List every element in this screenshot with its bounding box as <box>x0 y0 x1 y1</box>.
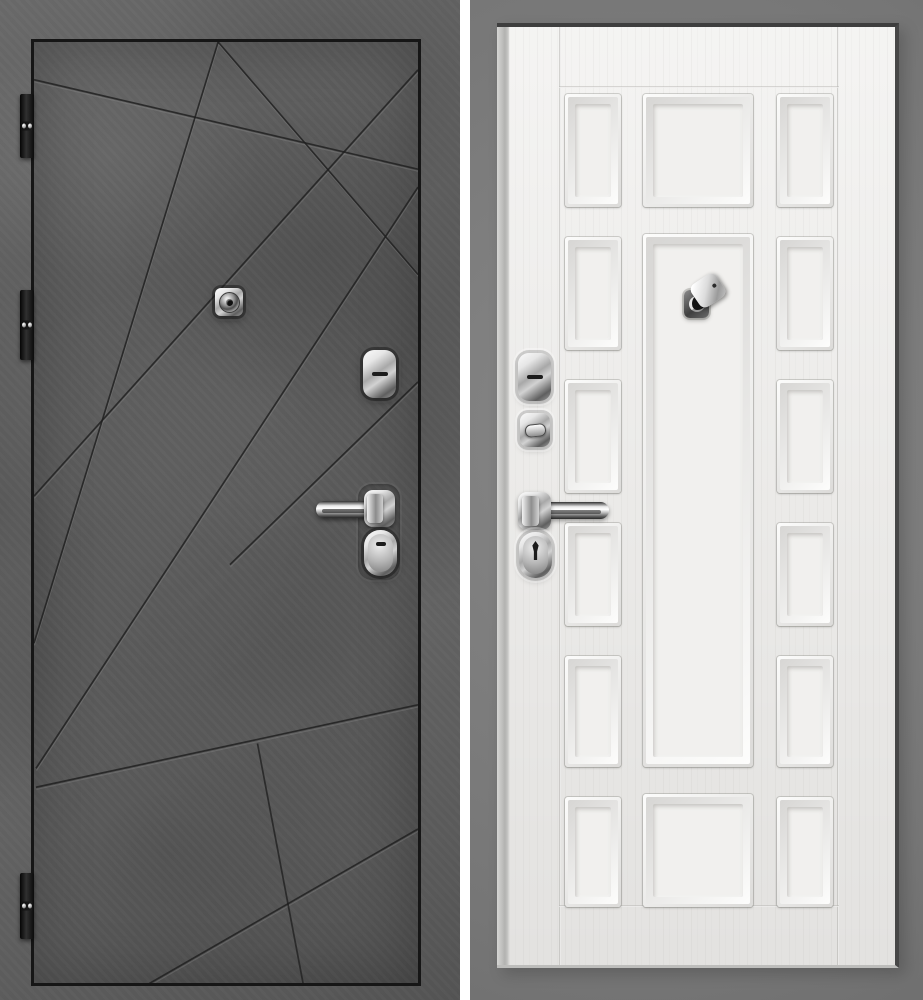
cylinder-lock <box>364 530 397 576</box>
cylinder-lock <box>519 532 552 578</box>
door-hinge <box>20 873 34 939</box>
thumb-turn-knob <box>524 422 546 437</box>
peephole-pupil <box>226 299 233 306</box>
interior-door-leaf <box>497 23 899 968</box>
raised-panel <box>643 94 753 207</box>
raised-panel <box>565 797 621 907</box>
photo-divider <box>460 0 470 1000</box>
raised-panel <box>643 794 753 907</box>
raised-panel <box>565 380 621 493</box>
raised-panel <box>565 656 621 767</box>
thumb-turn <box>520 413 550 447</box>
cover-pin <box>712 283 718 289</box>
keyhole-slot <box>527 375 543 379</box>
stile-seam <box>837 27 839 965</box>
raised-panel <box>777 94 833 207</box>
handle-collar <box>367 494 383 523</box>
door-hinge <box>20 290 34 360</box>
hinge-knuckle <box>22 902 32 911</box>
hinge-knuckle <box>22 321 32 330</box>
door-hinge <box>20 94 34 158</box>
peephole-lens <box>219 292 240 313</box>
cylinder-face <box>368 534 393 572</box>
raised-panel <box>777 797 833 907</box>
cylinder-keyhole <box>376 542 386 546</box>
raised-panel <box>777 237 833 350</box>
raised-panel <box>565 523 621 626</box>
exterior-side-photo <box>0 0 460 1000</box>
raised-panel <box>777 656 833 767</box>
handle-collar <box>522 496 539 526</box>
raised-panel <box>777 380 833 493</box>
door-product-image <box>0 0 923 1000</box>
keyhole-slot <box>372 372 388 376</box>
stile-seam <box>559 27 561 965</box>
raised-panel <box>565 237 621 350</box>
raised-panel <box>777 523 833 626</box>
interior-side-photo <box>470 0 923 1000</box>
peephole <box>215 288 243 316</box>
rail-seam <box>559 86 839 88</box>
exterior-door-leaf <box>31 39 421 986</box>
keyhole-escutcheon <box>363 350 396 398</box>
raised-panel <box>565 94 621 207</box>
keyhole-escutcheon <box>518 353 551 401</box>
hinge-knuckle <box>22 122 32 131</box>
